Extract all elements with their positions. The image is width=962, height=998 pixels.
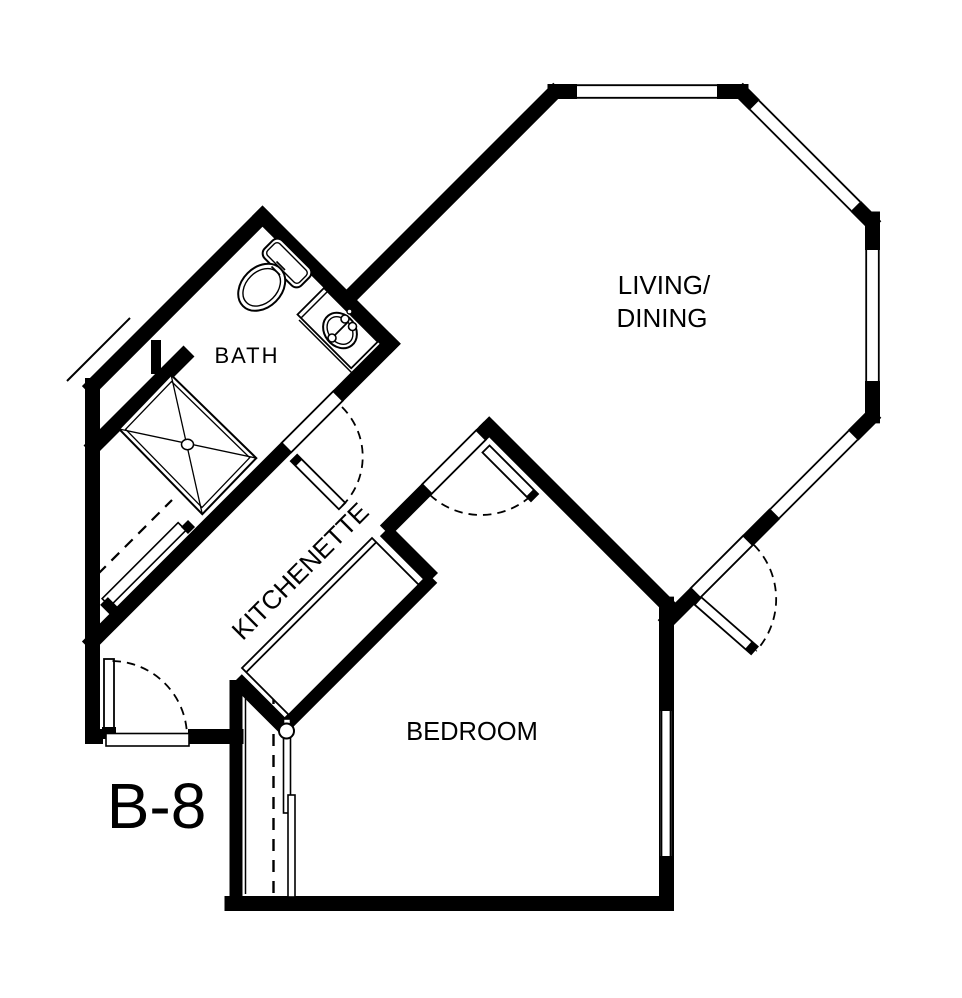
svg-text:BATH: BATH bbox=[214, 343, 279, 368]
svg-text:LIVING/: LIVING/ bbox=[618, 270, 711, 300]
svg-text:DINING: DINING bbox=[617, 303, 708, 333]
svg-text:BEDROOM: BEDROOM bbox=[406, 718, 538, 746]
svg-text:B-8: B-8 bbox=[107, 770, 207, 842]
